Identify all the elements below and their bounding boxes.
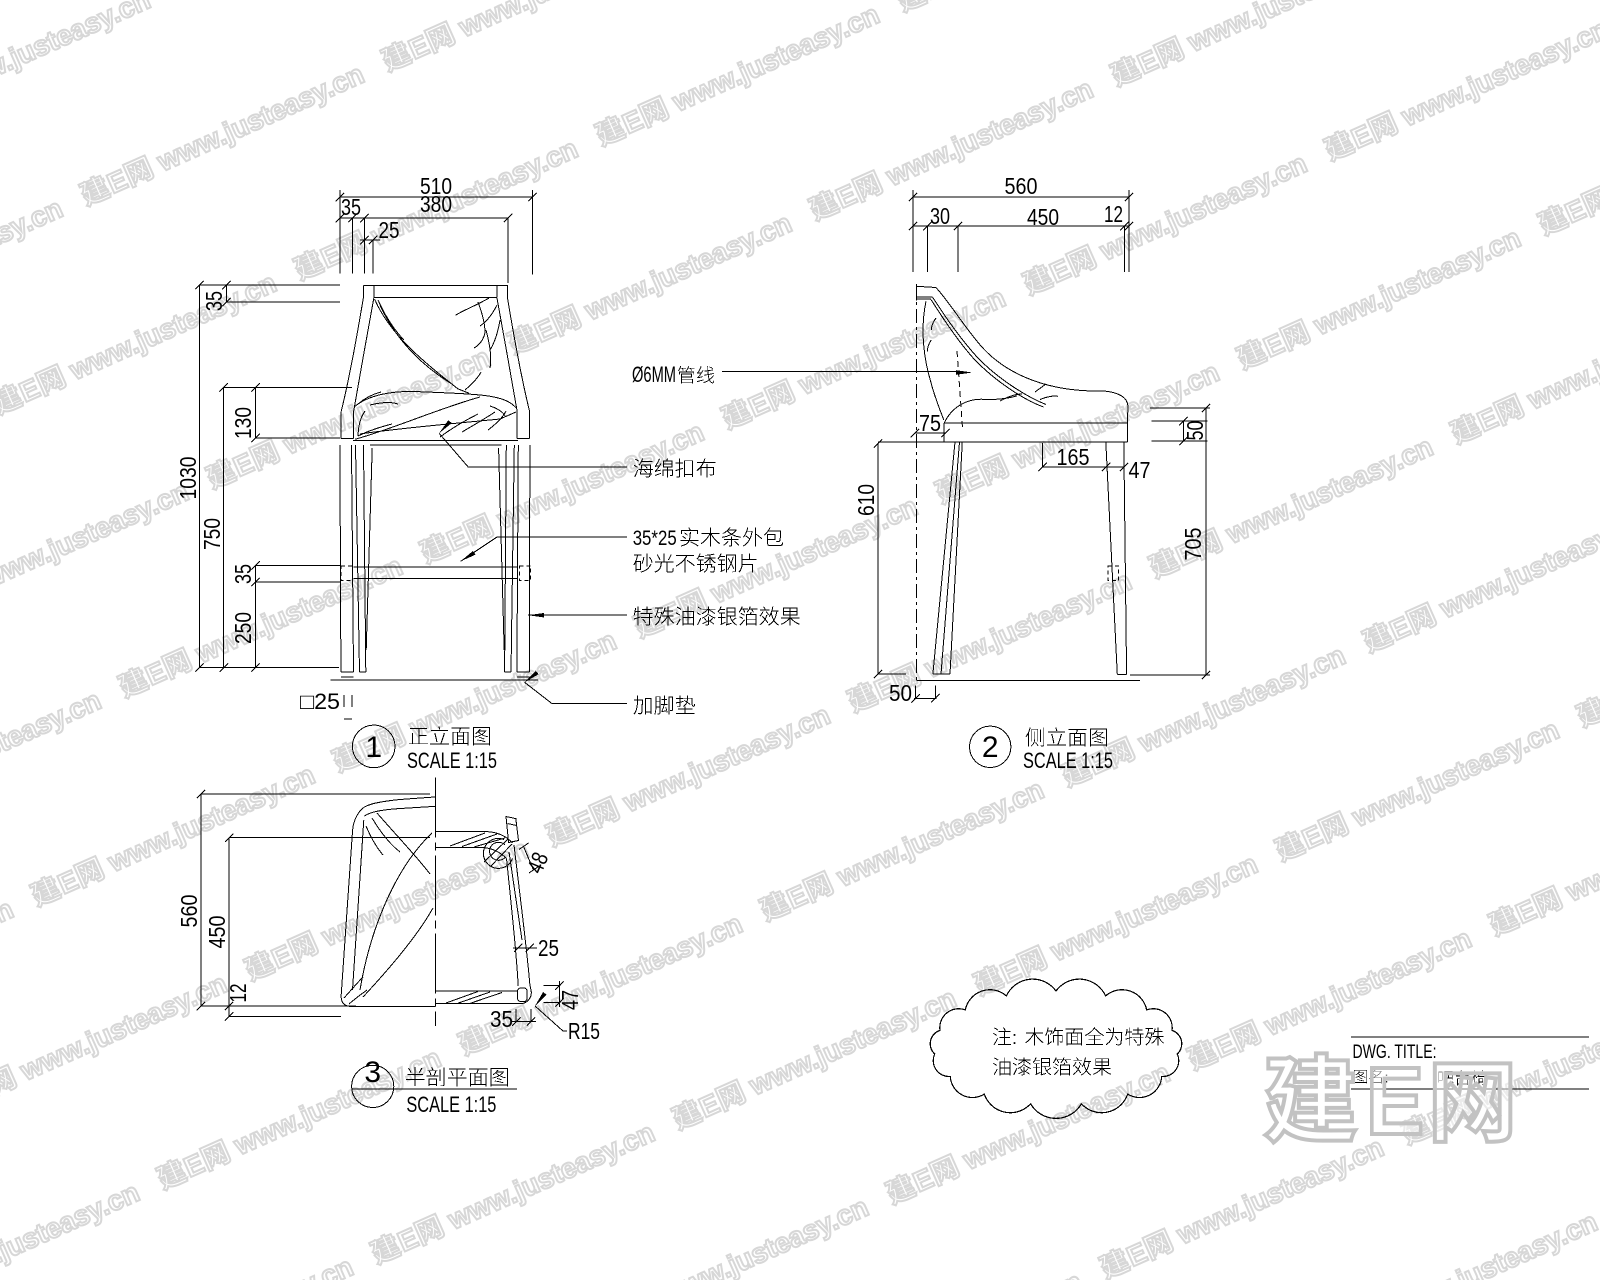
- svg-text:50: 50: [889, 680, 912, 706]
- svg-text:560: 560: [1005, 173, 1038, 199]
- svg-text:SCALE 1:15: SCALE 1:15: [407, 748, 497, 773]
- svg-text:1: 1: [365, 731, 382, 764]
- svg-text:□25: □25: [300, 689, 340, 714]
- svg-text:450: 450: [1027, 204, 1059, 230]
- svg-text:250: 250: [230, 612, 256, 644]
- svg-text:75: 75: [919, 410, 941, 436]
- svg-text:165: 165: [1057, 444, 1090, 470]
- svg-text:750: 750: [199, 518, 225, 550]
- svg-text:12: 12: [1104, 201, 1123, 227]
- svg-text:3: 3: [364, 1056, 381, 1089]
- svg-text:130: 130: [230, 407, 256, 439]
- svg-text:450: 450: [204, 916, 230, 949]
- svg-text:560: 560: [176, 895, 202, 928]
- svg-text:E: E: [1366, 1048, 1424, 1155]
- svg-text:50: 50: [1182, 421, 1208, 441]
- svg-text:35: 35: [341, 194, 361, 220]
- svg-text:SCALE 1:15: SCALE 1:15: [1023, 748, 1113, 773]
- svg-text:705: 705: [1180, 528, 1206, 561]
- svg-text:35*25: 35*25: [633, 527, 677, 550]
- svg-text::: :: [1012, 1028, 1017, 1048]
- svg-text:25: 25: [379, 217, 400, 243]
- svg-text:610: 610: [853, 484, 879, 516]
- svg-text:25: 25: [538, 935, 559, 961]
- svg-text:35: 35: [230, 564, 256, 584]
- svg-text:2: 2: [982, 731, 999, 764]
- svg-text:1030: 1030: [175, 457, 201, 500]
- svg-text:R15: R15: [568, 1018, 600, 1044]
- svg-text:30: 30: [930, 203, 950, 229]
- svg-text:380: 380: [420, 191, 452, 217]
- svg-text:35: 35: [201, 291, 227, 311]
- svg-text:35: 35: [490, 1006, 513, 1032]
- svg-text:47: 47: [557, 990, 583, 1010]
- svg-text:47: 47: [1129, 457, 1151, 483]
- svg-text:SCALE 1:15: SCALE 1:15: [406, 1092, 496, 1117]
- svg-text:Ø6MM: Ø6MM: [632, 362, 676, 387]
- svg-text:12: 12: [225, 984, 251, 1003]
